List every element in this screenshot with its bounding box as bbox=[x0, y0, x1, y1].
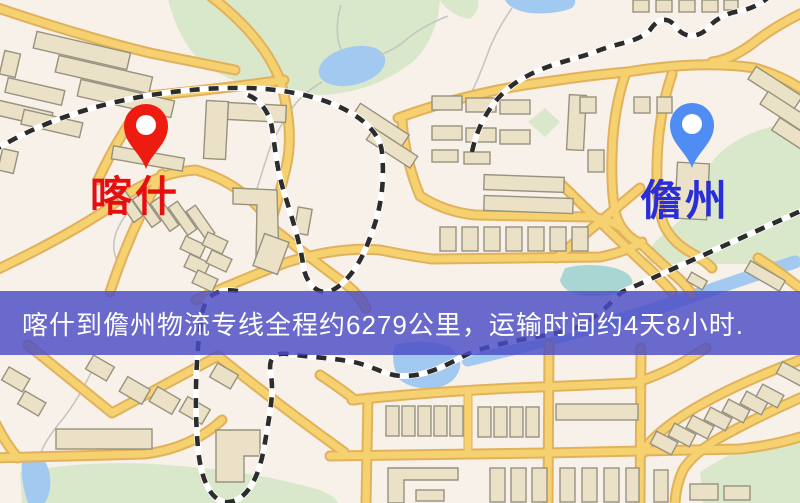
origin-city-label: 喀什 bbox=[90, 176, 180, 218]
destination-pin-icon bbox=[668, 101, 716, 169]
logistics-route-map-image: 喀什 儋州 喀什到儋州物流专线全程约6279公里，运输时间约4天8小时. bbox=[0, 0, 800, 503]
route-info-text: 喀什到儋州物流专线全程约6279公里，运输时间约4天8小时. bbox=[22, 305, 744, 342]
origin-pin-icon bbox=[122, 102, 170, 170]
route-info-banner: 喀什到儋州物流专线全程约6279公里，运输时间约4天8小时. bbox=[0, 291, 800, 355]
map-graphic bbox=[0, 0, 800, 503]
destination-city-label: 儋州 bbox=[640, 180, 730, 222]
